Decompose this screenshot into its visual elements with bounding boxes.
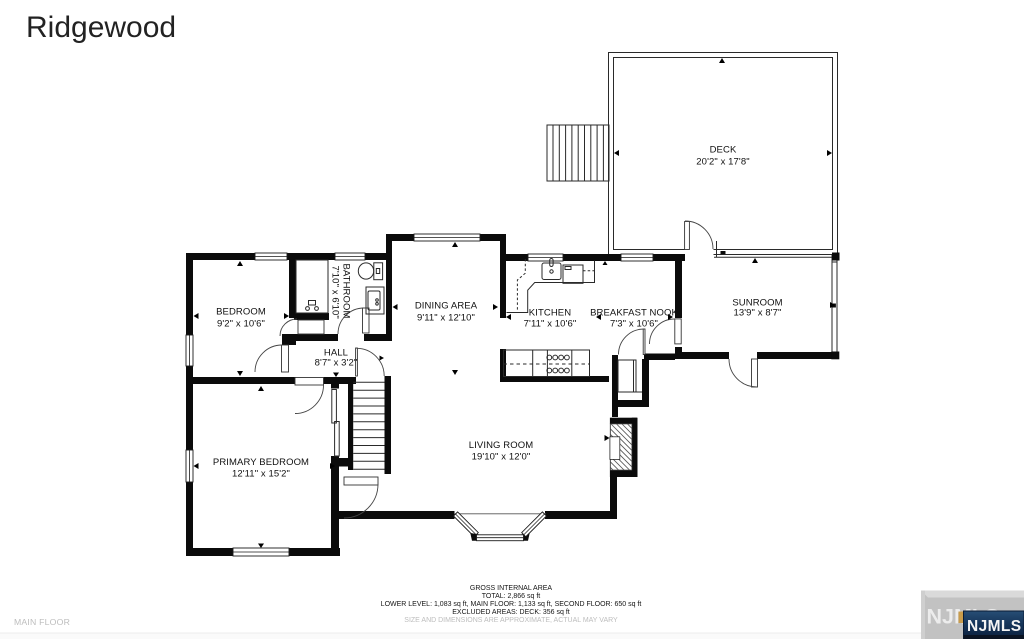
svg-text:13'9" x 8'7": 13'9" x 8'7" bbox=[733, 308, 781, 319]
svg-text:SIZE AND DIMENSIONS ARE APPROX: SIZE AND DIMENSIONS ARE APPROXIMATE, ACT… bbox=[404, 617, 618, 624]
svg-text:Ridgewood: Ridgewood bbox=[26, 11, 176, 44]
svg-text:GROSS INTERNAL AREA: GROSS INTERNAL AREA bbox=[470, 585, 553, 592]
svg-text:7'10" x 6'10": 7'10" x 6'10" bbox=[330, 266, 341, 319]
svg-text:20'2" x 17'8": 20'2" x 17'8" bbox=[696, 157, 749, 168]
svg-text:12'11" x 15'2": 12'11" x 15'2" bbox=[232, 469, 290, 480]
svg-text:BATHROOM: BATHROOM bbox=[341, 264, 352, 319]
svg-text:7'11" x 10'6": 7'11" x 10'6" bbox=[524, 319, 577, 330]
svg-text:DINING AREA: DINING AREA bbox=[415, 301, 478, 312]
svg-text:DECK: DECK bbox=[710, 145, 737, 156]
svg-text:7'3" x 10'6": 7'3" x 10'6" bbox=[610, 319, 658, 330]
svg-text:TOTAL: 2,866 sq ft: TOTAL: 2,866 sq ft bbox=[482, 593, 541, 600]
svg-text:9'2" x 10'6": 9'2" x 10'6" bbox=[217, 319, 265, 330]
svg-text:19'10" x 12'0": 19'10" x 12'0" bbox=[472, 452, 531, 463]
svg-text:EXCLUDED AREAS: DECK: 356 sq f: EXCLUDED AREAS: DECK: 356 sq ft bbox=[452, 609, 570, 616]
svg-text:MAIN FLOOR: MAIN FLOOR bbox=[14, 617, 70, 627]
svg-text:KITCHEN: KITCHEN bbox=[529, 308, 571, 319]
svg-text:PRIMARY BEDROOM: PRIMARY BEDROOM bbox=[213, 457, 309, 468]
svg-text:8'7" x 3'2": 8'7" x 3'2" bbox=[315, 358, 358, 369]
svg-text:BEDROOM: BEDROOM bbox=[216, 307, 266, 318]
svg-text:NJMLS: NJMLS bbox=[967, 618, 1022, 635]
svg-text:LIVING ROOM: LIVING ROOM bbox=[469, 440, 533, 451]
svg-text:BREAKFAST NOOK: BREAKFAST NOOK bbox=[590, 308, 678, 319]
svg-text:LOWER LEVEL: 1,083 sq ft, MAIN: LOWER LEVEL: 1,083 sq ft, MAIN FLOOR: 1,… bbox=[381, 601, 642, 608]
svg-text:9'11" x 12'10": 9'11" x 12'10" bbox=[417, 313, 475, 324]
